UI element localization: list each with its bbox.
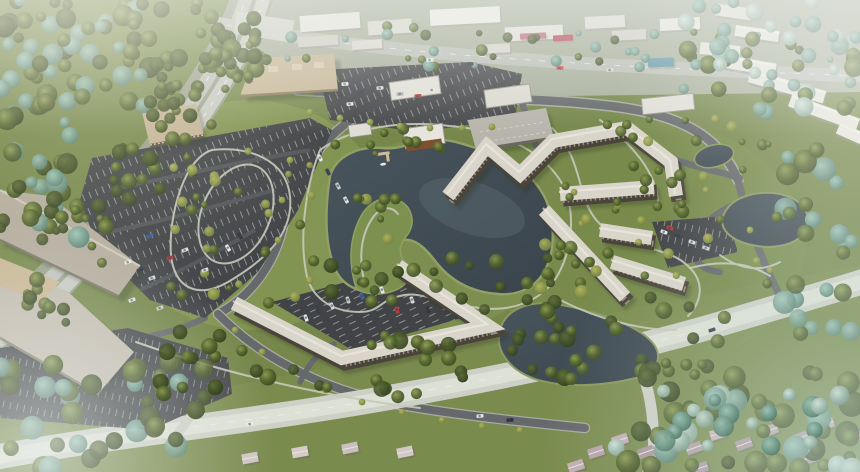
tree (465, 261, 474, 270)
tree (541, 267, 554, 280)
tree (177, 382, 189, 394)
street-tree (259, 349, 266, 356)
tree (250, 364, 263, 377)
tree (654, 430, 676, 452)
tree (406, 263, 420, 277)
tree (457, 372, 468, 383)
tree (352, 266, 361, 275)
tree (830, 386, 850, 406)
tree (308, 255, 319, 266)
tree (419, 353, 432, 366)
tree (353, 193, 362, 202)
street-tree (479, 423, 486, 430)
tree (522, 294, 533, 305)
tree (322, 382, 332, 392)
tree (379, 194, 391, 206)
street-tree (439, 417, 446, 424)
tree (181, 350, 195, 364)
tree (534, 330, 548, 344)
tree (411, 388, 422, 399)
tree (324, 284, 339, 299)
tree (207, 379, 223, 395)
tree (535, 282, 547, 294)
tree (811, 398, 828, 415)
aerial-development-render: Aerial rendering of a suburban mixed-use… (0, 0, 860, 472)
car (476, 414, 483, 418)
tree (590, 265, 601, 276)
tree (383, 234, 394, 245)
tree (713, 416, 734, 437)
tree (391, 390, 404, 403)
tree (746, 417, 759, 430)
car (506, 418, 513, 422)
tree (377, 215, 384, 222)
tree (156, 386, 172, 402)
car-glass (478, 415, 481, 418)
tree (613, 198, 621, 206)
tree (539, 238, 551, 250)
tree (429, 279, 443, 293)
tree (708, 394, 721, 407)
tree (365, 295, 378, 308)
tree (545, 366, 557, 378)
tree (581, 214, 592, 225)
tree (386, 294, 398, 306)
tree (556, 240, 566, 250)
tree (495, 282, 506, 293)
street-tree (517, 427, 524, 434)
tree (290, 292, 300, 302)
tree (366, 140, 375, 149)
tree (602, 247, 613, 258)
tree (543, 253, 553, 263)
tree (159, 343, 176, 360)
tree (324, 258, 339, 273)
tree (506, 345, 517, 356)
tree (295, 220, 305, 230)
tree (441, 351, 456, 366)
street-tree (399, 409, 406, 416)
tree (783, 388, 796, 401)
tree (565, 193, 573, 201)
tree (521, 277, 533, 289)
street-tree (359, 399, 366, 406)
tree (236, 345, 247, 356)
tree (564, 241, 578, 255)
aerial-scene (0, 0, 860, 472)
tree (420, 340, 436, 356)
tree (761, 405, 777, 421)
tree (403, 137, 413, 147)
tree (702, 440, 714, 452)
tree (571, 259, 581, 269)
tree (390, 193, 401, 204)
tree (540, 304, 555, 319)
tree (370, 285, 380, 295)
tree (173, 325, 188, 340)
tree (456, 292, 468, 304)
tree (696, 410, 714, 428)
tree (367, 340, 377, 350)
tree (489, 254, 504, 269)
tree (803, 436, 817, 450)
tree (429, 267, 438, 276)
tree (384, 335, 398, 349)
tree (433, 141, 444, 152)
tree (213, 329, 227, 343)
tree (637, 216, 646, 225)
tree (584, 257, 595, 268)
tree (375, 272, 389, 286)
car-glass (508, 419, 511, 422)
tree (226, 285, 232, 291)
tree (360, 260, 371, 271)
tree (392, 266, 404, 278)
tree (553, 322, 565, 334)
tree (761, 436, 780, 455)
tree (288, 364, 299, 375)
tree (263, 297, 274, 308)
tree (441, 337, 457, 353)
tree (512, 333, 524, 345)
tree (479, 304, 490, 315)
tree (561, 182, 569, 190)
tree (374, 381, 390, 397)
tree (306, 276, 314, 284)
tree (235, 280, 243, 288)
tree (575, 285, 589, 299)
tree (359, 277, 370, 288)
tree (446, 251, 460, 265)
tree (527, 364, 538, 375)
tree (372, 151, 378, 157)
tree (554, 250, 564, 260)
